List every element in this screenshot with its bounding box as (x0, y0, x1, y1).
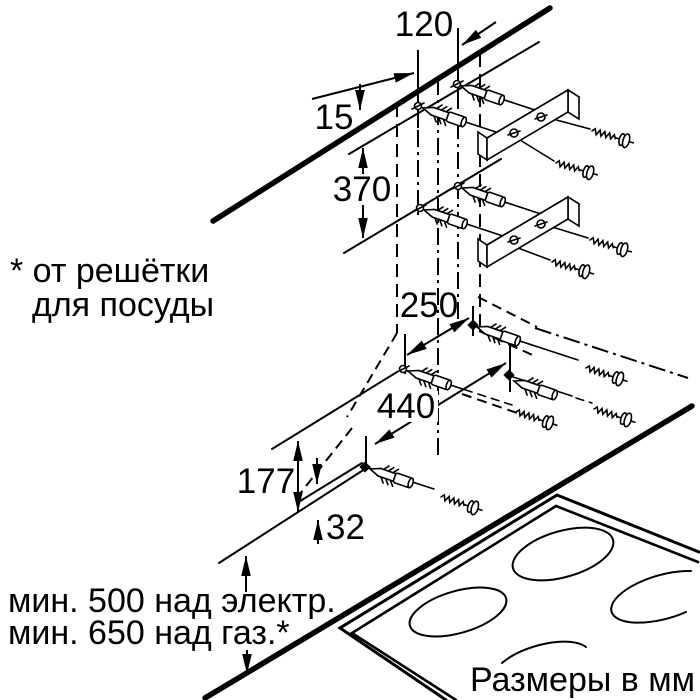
wall-bottom-line (205, 406, 692, 698)
burner-arc (502, 642, 586, 663)
burner-circle (507, 518, 620, 591)
dim-15-label: 15 (315, 98, 354, 137)
anchor-dowel-icon (459, 179, 508, 211)
screw-icon (584, 361, 629, 388)
body-right-rim (462, 394, 523, 415)
anchor-dowel-icon (367, 460, 416, 492)
arrow-120-left (312, 73, 414, 99)
screw-icon (588, 233, 633, 258)
anchor-dowel-icon (511, 372, 560, 404)
axis-line (520, 140, 554, 161)
dim-120-label: 120 (395, 5, 453, 44)
screw-icon (514, 405, 559, 432)
mounting-brackets (478, 90, 579, 267)
anchor-dowel-icon (420, 99, 469, 131)
arrow-120-right (462, 22, 496, 45)
dim-440-label: 440 (377, 387, 435, 426)
note-min-gas: мин. 650 над газ.* (8, 614, 290, 652)
note-grid-line2: для посуды (32, 286, 214, 324)
body-left-edge (295, 428, 352, 500)
dim-370-label: 370 (333, 170, 391, 209)
screw-icon (554, 156, 599, 181)
axis-line (478, 394, 512, 405)
axis-line (576, 398, 592, 403)
dim-32-label: 32 (326, 508, 365, 547)
note-units: Размеры в мм (470, 661, 695, 699)
screw-icon (439, 490, 484, 517)
note-grid-line1: * от решётки (10, 252, 209, 290)
burner-circle (404, 578, 512, 646)
anchor-dowel-icon (458, 77, 507, 109)
hood-lip-line (297, 463, 362, 503)
anchor-dowel-icon (474, 318, 523, 350)
dim-177-label: 177 (237, 462, 295, 501)
axis-line (549, 226, 588, 238)
dim-250-label: 250 (400, 286, 458, 325)
burner-arc (611, 571, 691, 623)
screw-icon (550, 255, 595, 280)
canopy-right-slope-a (478, 297, 537, 327)
installation-diagram: 120 15 370 250 440 177 32 * от решётки д… (0, 0, 700, 700)
screw-icon (590, 124, 635, 149)
axis-line (518, 248, 550, 260)
diagram-page: 120 15 370 250 440 177 32 * от решётки д… (0, 0, 700, 700)
screw-icon (592, 402, 637, 429)
anchor-dowel-icon (421, 201, 470, 233)
